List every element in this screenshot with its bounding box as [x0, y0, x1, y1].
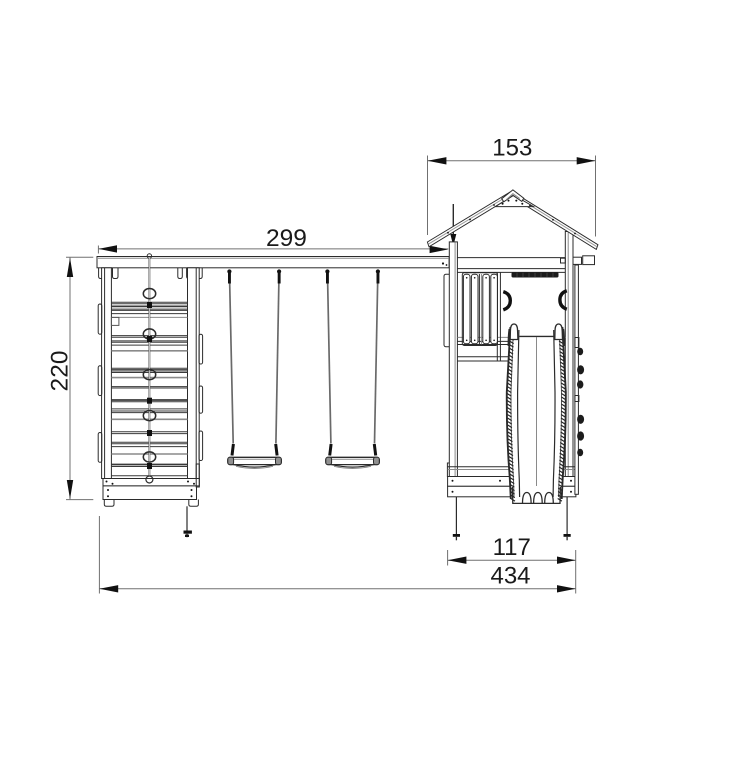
svg-text:434: 434: [490, 563, 530, 590]
svg-text:299: 299: [266, 225, 307, 252]
svg-text:220: 220: [47, 351, 74, 392]
svg-text:153: 153: [492, 134, 532, 161]
svg-text:117: 117: [493, 534, 531, 561]
